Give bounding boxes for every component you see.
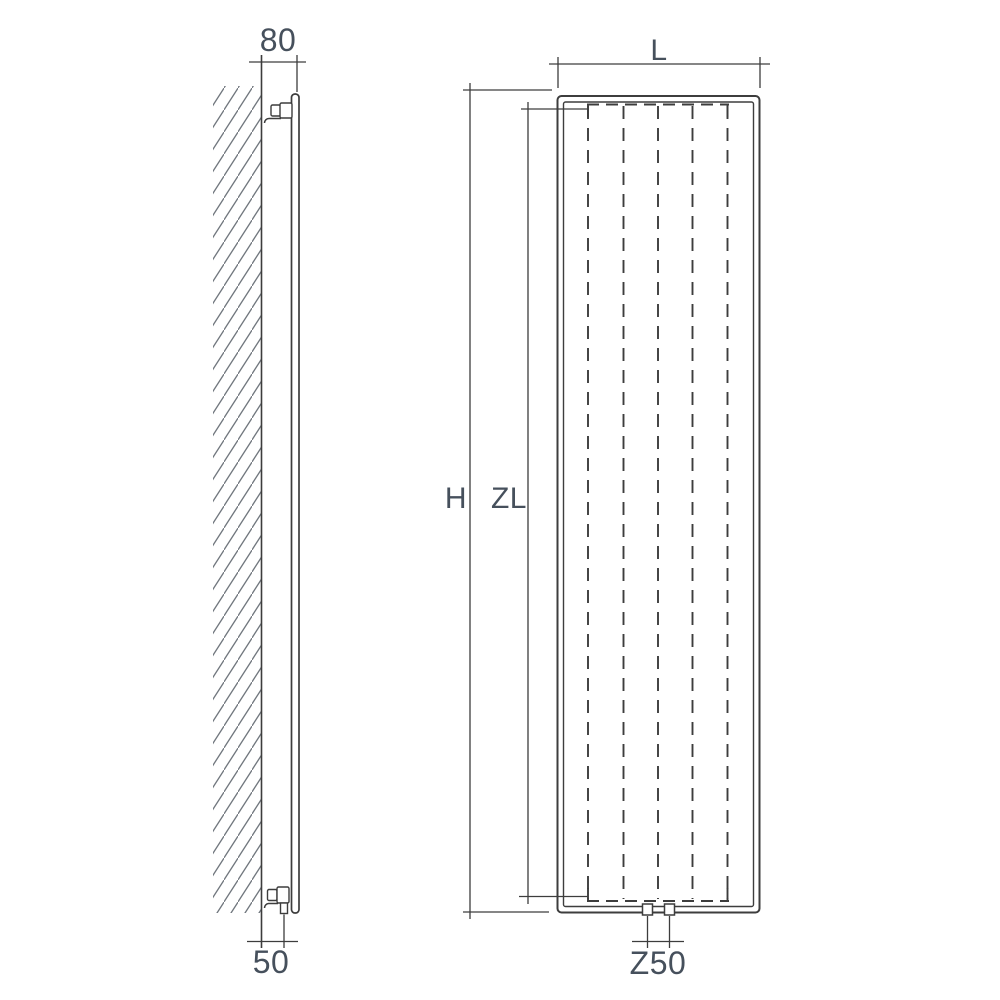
dim-label-depth: 80 xyxy=(260,22,297,58)
dimension-connection-spacing: Z50 xyxy=(630,916,687,981)
side-connection-stub xyxy=(281,903,288,914)
dimension-depth: 80 xyxy=(249,22,306,92)
side-view: 80 50 xyxy=(213,22,306,980)
connection-stub-left xyxy=(643,904,653,915)
dim-label-height: H xyxy=(445,482,467,515)
dim-label-width: L xyxy=(650,34,667,67)
front-view: L H ZL Z50 xyxy=(445,34,770,981)
radiator-dimension-diagram: 80 50 xyxy=(0,0,1000,1000)
dim-label-connection-spacing: Z50 xyxy=(630,945,687,981)
dim-label-inner-height: ZL xyxy=(491,482,527,515)
wall-hatch xyxy=(213,86,262,913)
mounting-bracket-top xyxy=(265,103,293,123)
dimension-width: L xyxy=(549,34,770,88)
technical-drawing-canvas: 80 50 xyxy=(0,0,1000,1000)
connection-stub-right xyxy=(665,904,675,915)
radiator-panel-side xyxy=(292,94,300,913)
dimension-bottom-offset: 50 xyxy=(247,915,298,981)
mounting-bracket-bottom xyxy=(264,887,289,914)
dim-label-bottom-offset: 50 xyxy=(253,944,290,980)
